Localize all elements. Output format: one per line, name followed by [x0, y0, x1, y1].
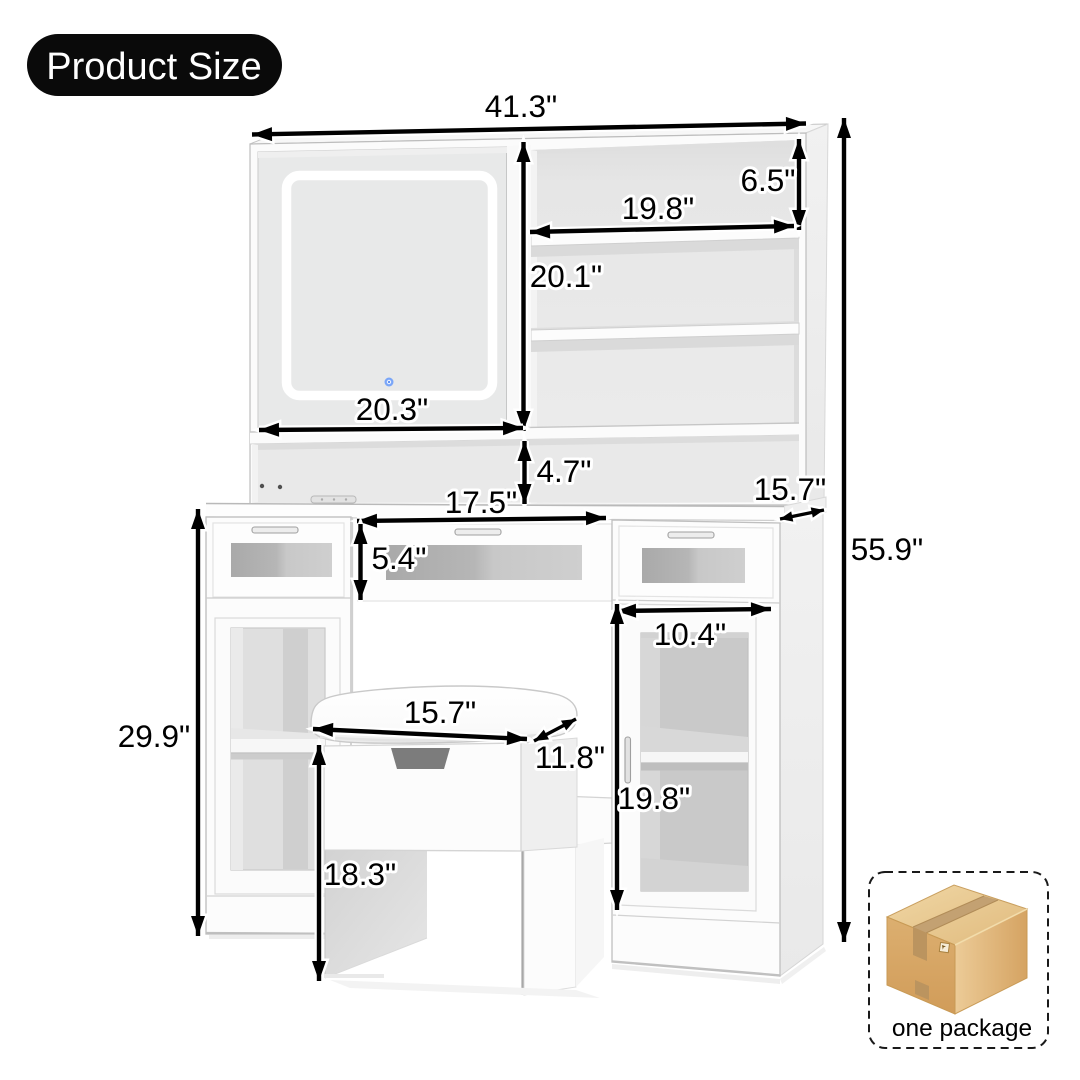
svg-text:11.8": 11.8" — [535, 739, 605, 775]
svg-text:10.4": 10.4" — [654, 616, 727, 652]
svg-text:Product Size: Product Size — [46, 46, 261, 88]
svg-text:20.3": 20.3" — [356, 391, 429, 427]
svg-text:15.7": 15.7" — [754, 471, 827, 507]
svg-text:4.7": 4.7" — [537, 453, 592, 489]
svg-text:one package: one package — [892, 1015, 1032, 1042]
svg-text:55.9": 55.9" — [851, 531, 924, 567]
svg-text:17.5": 17.5" — [445, 484, 518, 520]
svg-text:20.1": 20.1" — [530, 258, 603, 294]
svg-text:19.8": 19.8" — [618, 780, 691, 816]
svg-text:19.8": 19.8" — [622, 190, 695, 226]
svg-text:29.9": 29.9" — [118, 718, 191, 754]
svg-text:15.7": 15.7" — [404, 694, 477, 730]
svg-text:6.5": 6.5" — [741, 162, 796, 198]
svg-text:41.3": 41.3" — [485, 88, 558, 124]
svg-text:18.3": 18.3" — [324, 856, 397, 892]
svg-text:5.4": 5.4" — [372, 540, 427, 576]
